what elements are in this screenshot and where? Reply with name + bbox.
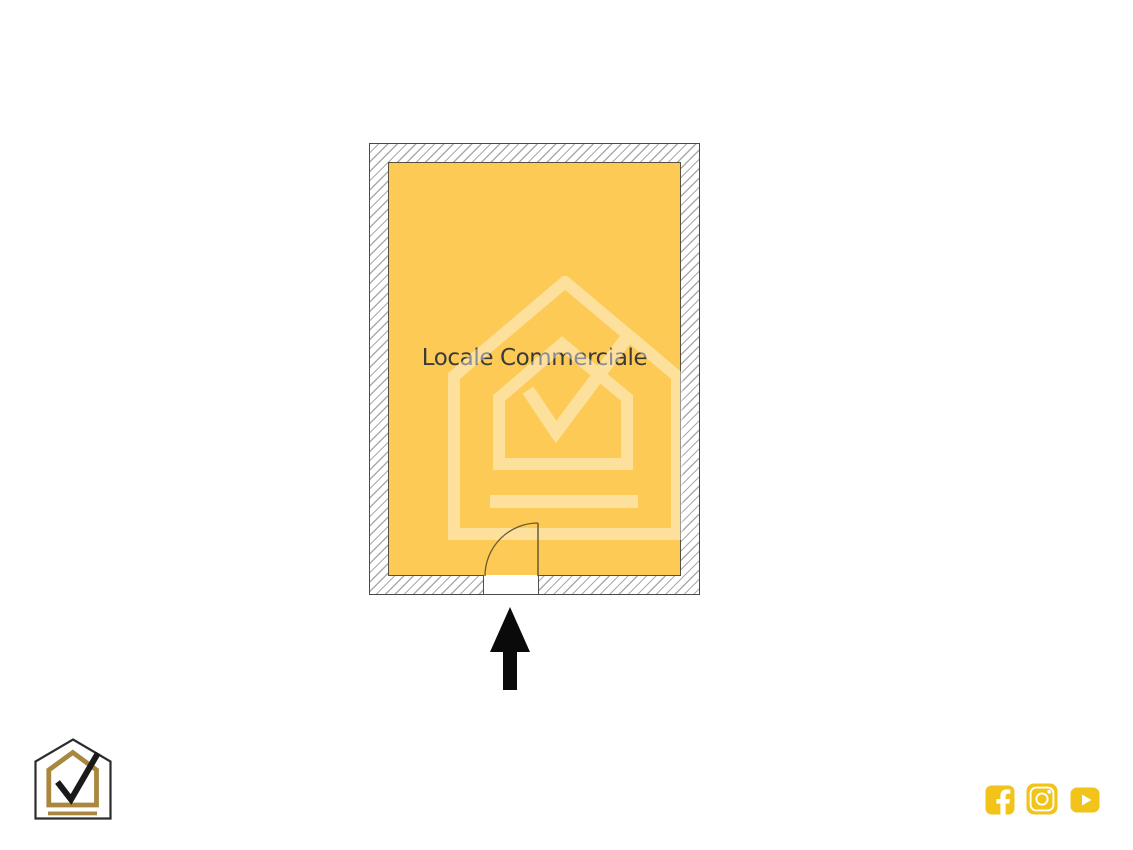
floorplan-page: { "floor_plan": { "room_label": "Locale … xyxy=(0,0,1133,850)
agency-house-logo xyxy=(34,738,112,820)
room-locale-commerciale: Locale Commerciale xyxy=(388,162,681,576)
watermark-underline-bar xyxy=(490,495,638,508)
entrance-arrow-icon xyxy=(488,605,532,693)
floor-plan: Locale Commerciale xyxy=(369,143,700,595)
instagram-icon[interactable] xyxy=(1026,783,1058,815)
logo-underline-bar xyxy=(48,812,97,816)
house-check-watermark-icon xyxy=(448,276,683,540)
facebook-icon[interactable] xyxy=(985,785,1015,815)
youtube-icon[interactable] xyxy=(1070,787,1100,813)
door-arc xyxy=(485,523,538,576)
door-swing-icon xyxy=(482,520,542,578)
